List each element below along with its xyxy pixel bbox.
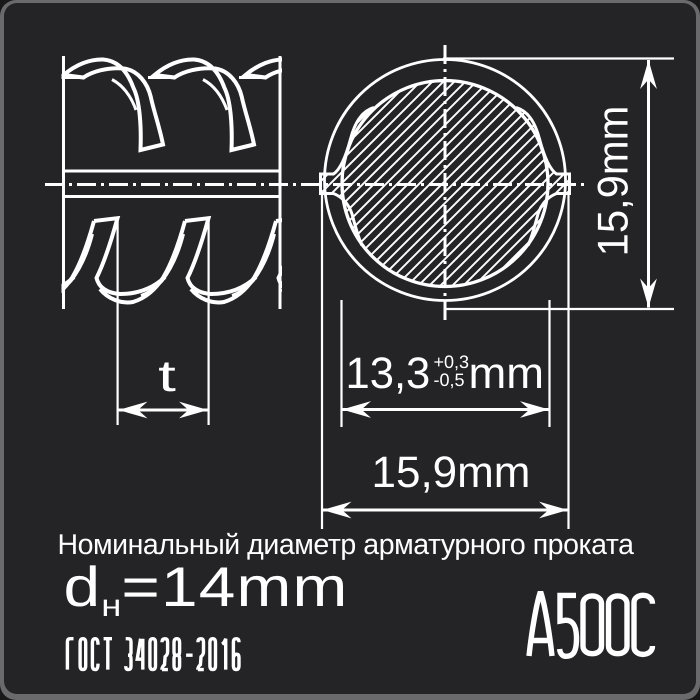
svg-text:15,9mm: 15,9mm — [590, 106, 638, 257]
svg-text:+0,3: +0,3 — [434, 352, 470, 372]
svg-text:mm: mm — [469, 349, 545, 398]
svg-text:t: t — [158, 352, 176, 401]
svg-text:15,9mm: 15,9mm — [372, 448, 531, 497]
svg-text:-0,5: -0,5 — [434, 370, 465, 390]
svg-text:13,3: 13,3 — [346, 349, 431, 398]
